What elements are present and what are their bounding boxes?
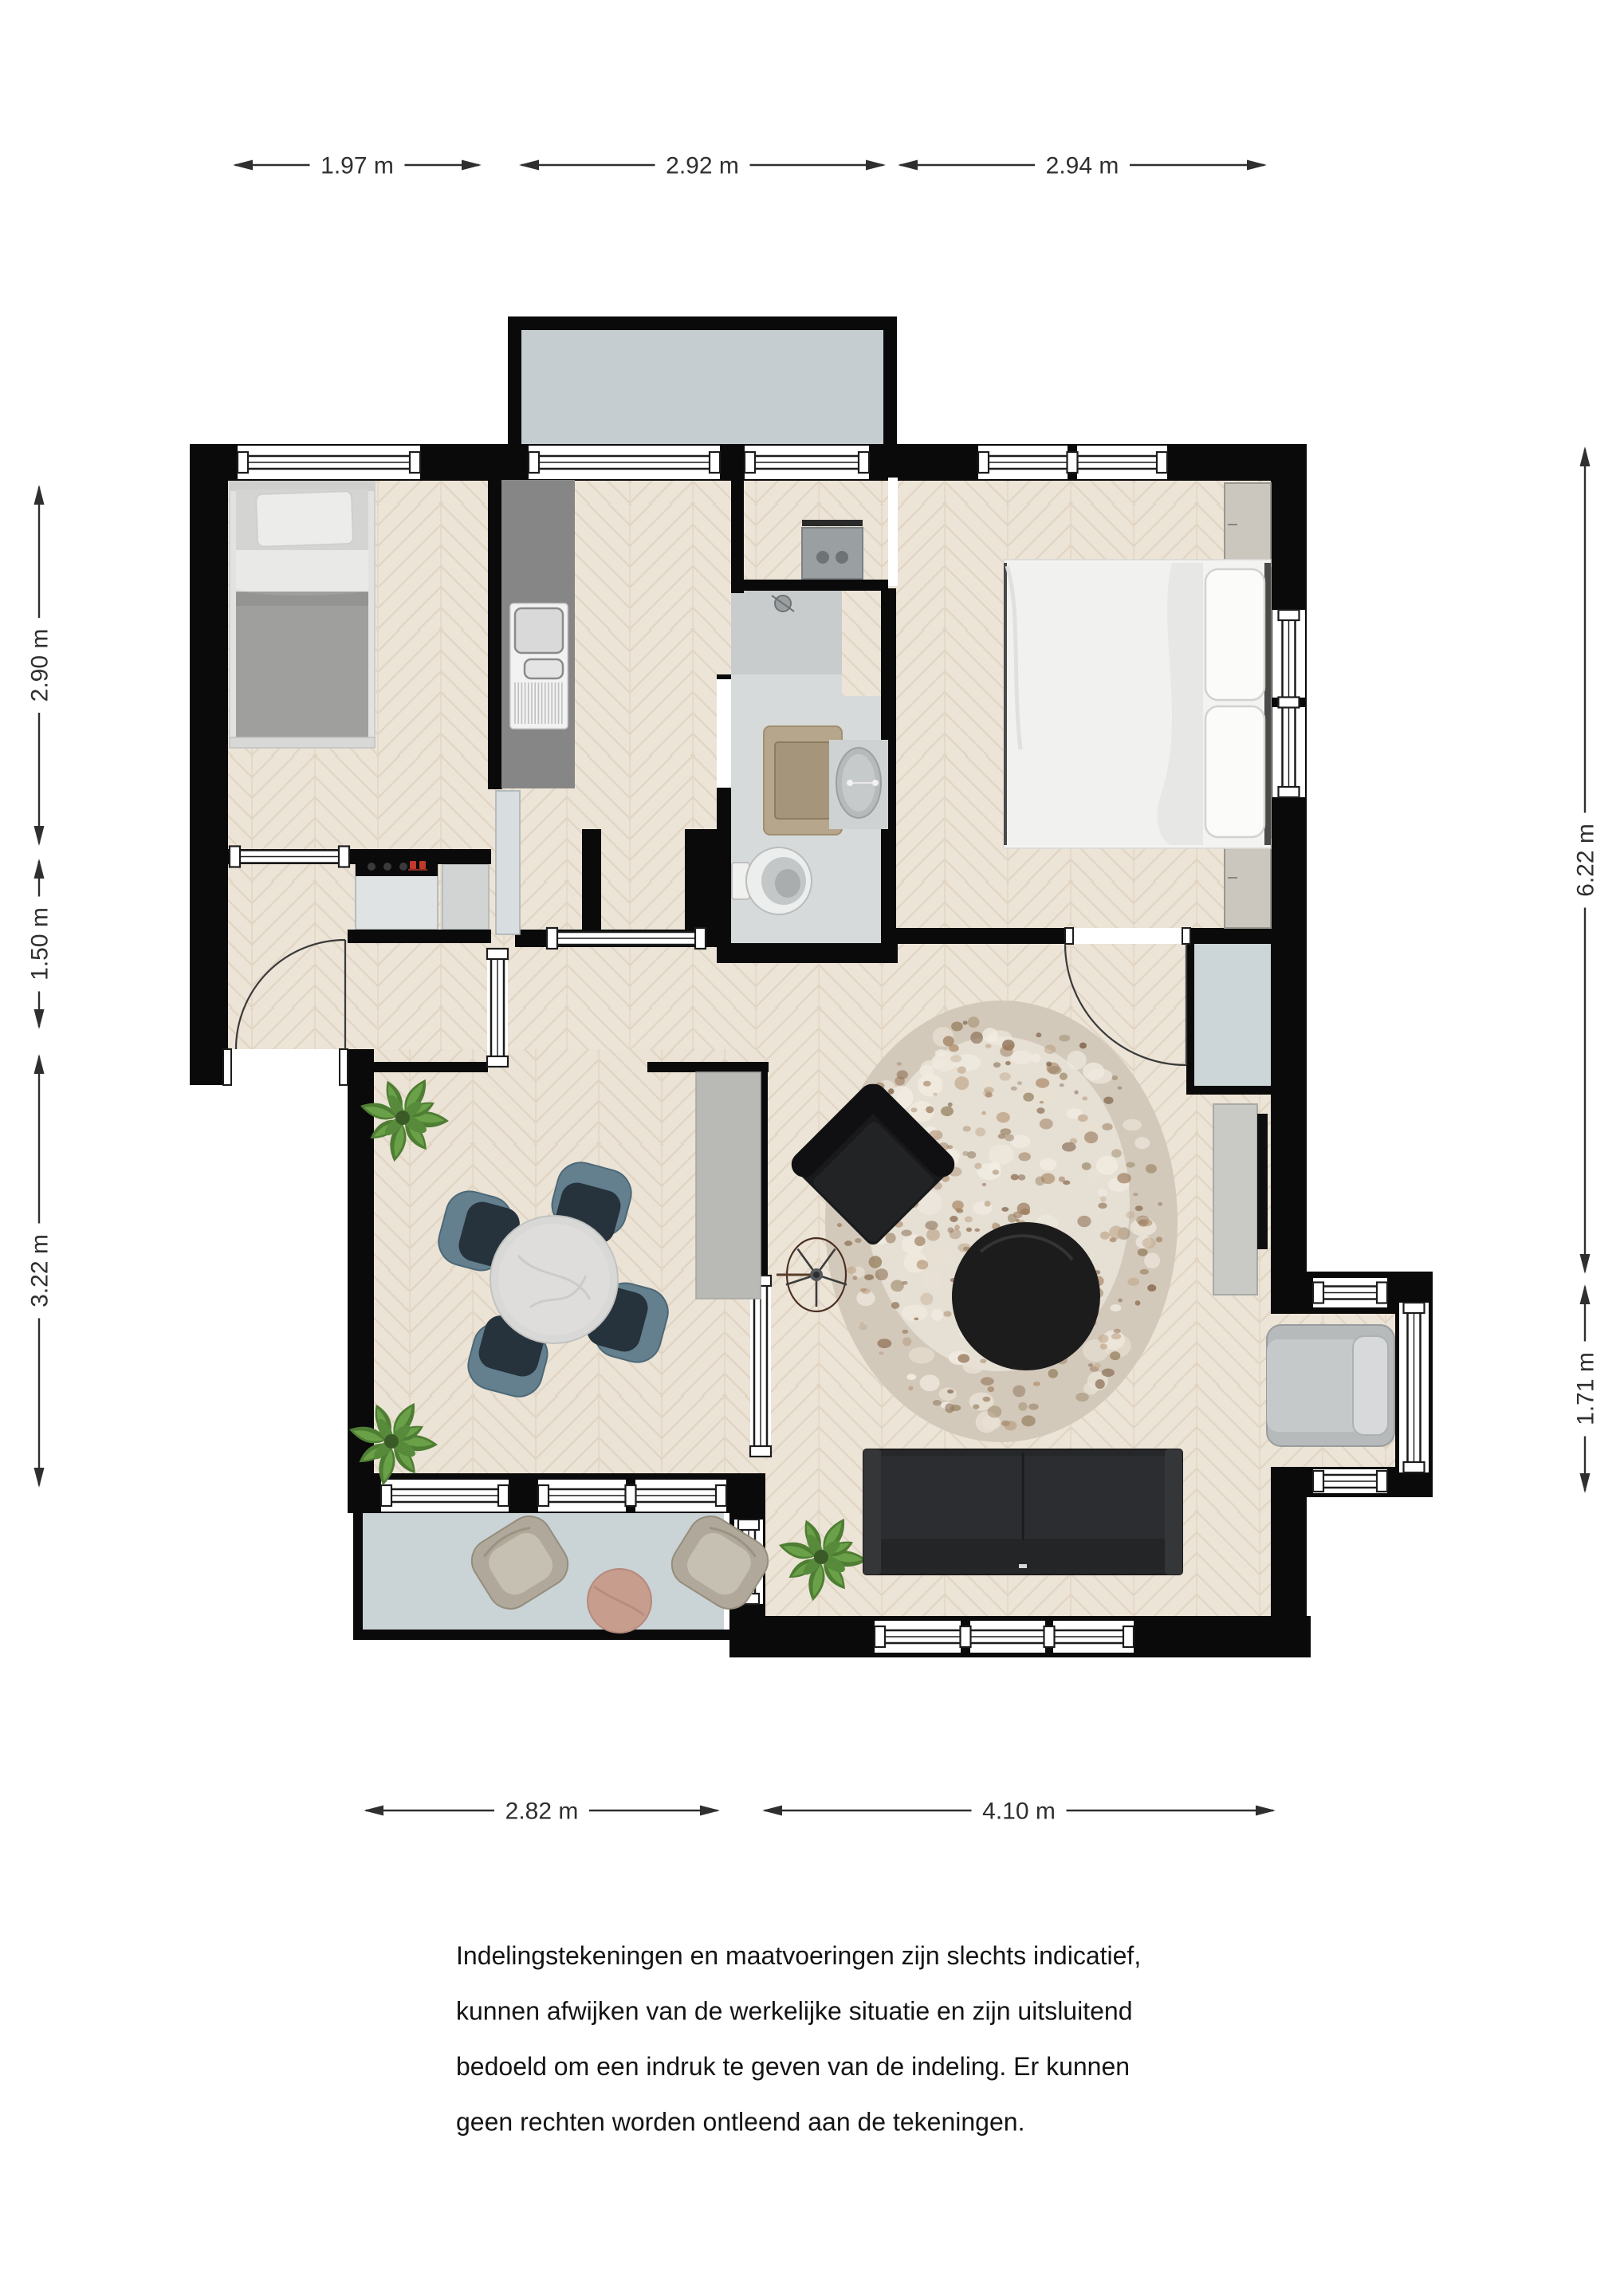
svg-text:2.90 m: 2.90 m — [27, 629, 53, 702]
svg-text:2.82 m: 2.82 m — [505, 1799, 579, 1825]
svg-text:3.22 m: 3.22 m — [27, 1234, 53, 1307]
svg-text:bedoeld om een indruk te geven: bedoeld om een indruk te geven van de in… — [456, 2052, 1130, 2081]
svg-text:4.10 m: 4.10 m — [982, 1799, 1056, 1825]
svg-text:1.97 m: 1.97 m — [320, 153, 394, 179]
svg-text:2.92 m: 2.92 m — [666, 153, 739, 179]
svg-text:1.71 m: 1.71 m — [1573, 1352, 1599, 1425]
svg-text:2.94 m: 2.94 m — [1046, 153, 1119, 179]
svg-text:1.50 m: 1.50 m — [27, 907, 53, 981]
svg-text:Indelingstekeningen en maatvoe: Indelingstekeningen en maatvoeringen zij… — [456, 1941, 1141, 1970]
svg-text:6.22 m: 6.22 m — [1573, 824, 1599, 897]
svg-text:kunnen afwijken van de werkeli: kunnen afwijken van de werkelijke situat… — [456, 1997, 1132, 2026]
svg-text:geen rechten worden ontleend a: geen rechten worden ontleend aan de teke… — [456, 2108, 1024, 2137]
